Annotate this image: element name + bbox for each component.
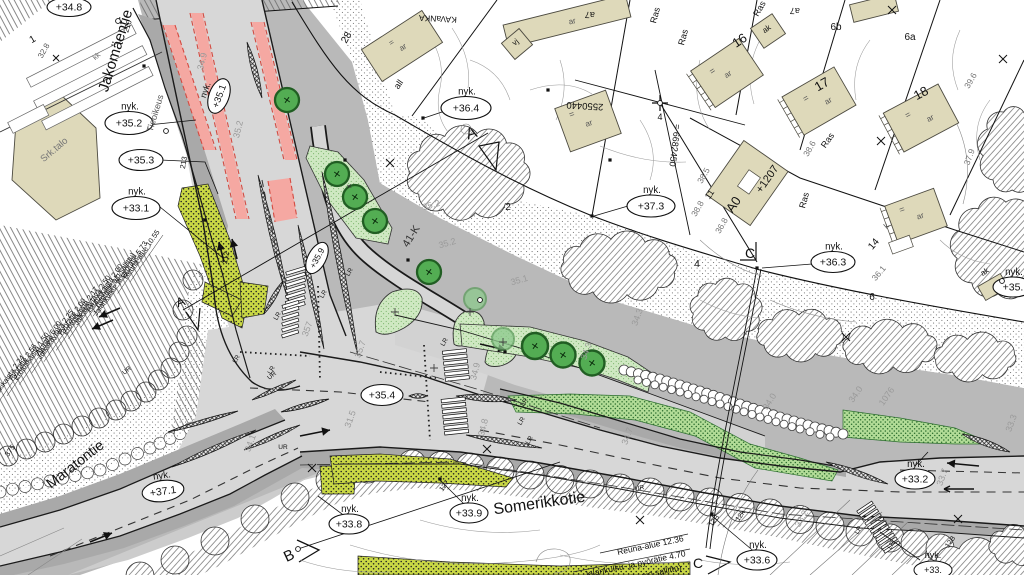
svg-text:+37.3: +37.3 bbox=[638, 201, 665, 213]
svg-text:nyk.: nyk. bbox=[121, 102, 139, 113]
svg-text:nyk.: nyk. bbox=[643, 185, 661, 196]
svg-text:2: 2 bbox=[505, 202, 511, 213]
svg-text:nyk.: nyk. bbox=[458, 87, 476, 98]
svg-text:nyk.: nyk. bbox=[907, 459, 925, 470]
svg-text:4: 4 bbox=[657, 112, 662, 122]
svg-text:+33.2: +33.2 bbox=[902, 474, 929, 486]
svg-text:nyk.: nyk. bbox=[1005, 267, 1023, 278]
svg-text:+36.3: +36.3 bbox=[820, 257, 847, 269]
svg-text:C: C bbox=[745, 245, 755, 261]
svg-text:+33.1: +33.1 bbox=[123, 203, 150, 215]
svg-text:nyk.: nyk. bbox=[341, 504, 359, 515]
svg-text:nyk.: nyk. bbox=[128, 187, 146, 198]
svg-text:+35.4: +35.4 bbox=[369, 390, 396, 402]
svg-text:a7: a7 bbox=[585, 10, 596, 21]
svg-text:nyk.: nyk. bbox=[749, 540, 767, 551]
svg-text:+33.: +33. bbox=[924, 565, 942, 575]
svg-text:+36.4: +36.4 bbox=[453, 103, 480, 115]
svg-text:a7: a7 bbox=[790, 6, 801, 17]
svg-text:+34.8: +34.8 bbox=[56, 2, 83, 14]
svg-text:+33.6: +33.6 bbox=[744, 555, 771, 567]
svg-text:+35.3: +35.3 bbox=[128, 155, 155, 167]
svg-text:nyk.: nyk. bbox=[461, 493, 479, 504]
svg-text:nyk.: nyk. bbox=[925, 550, 942, 560]
svg-text:C: C bbox=[693, 555, 703, 571]
svg-text:+35.2: +35.2 bbox=[116, 118, 143, 130]
svg-text:+35.: +35. bbox=[1003, 282, 1024, 294]
svg-text:UR: UR bbox=[278, 444, 288, 451]
svg-text:KAVaNKA: KAVaNKA bbox=[418, 13, 457, 25]
svg-text:6: 6 bbox=[869, 292, 875, 303]
svg-text:6b: 6b bbox=[830, 22, 842, 33]
svg-text:nyk.: nyk. bbox=[825, 242, 843, 253]
svg-text:+33.9: +33.9 bbox=[456, 508, 483, 520]
svg-text:2550440: 2550440 bbox=[566, 99, 604, 112]
svg-text:4: 4 bbox=[694, 259, 700, 270]
svg-text:+33.8: +33.8 bbox=[336, 519, 363, 531]
svg-text:6a: 6a bbox=[904, 32, 916, 43]
